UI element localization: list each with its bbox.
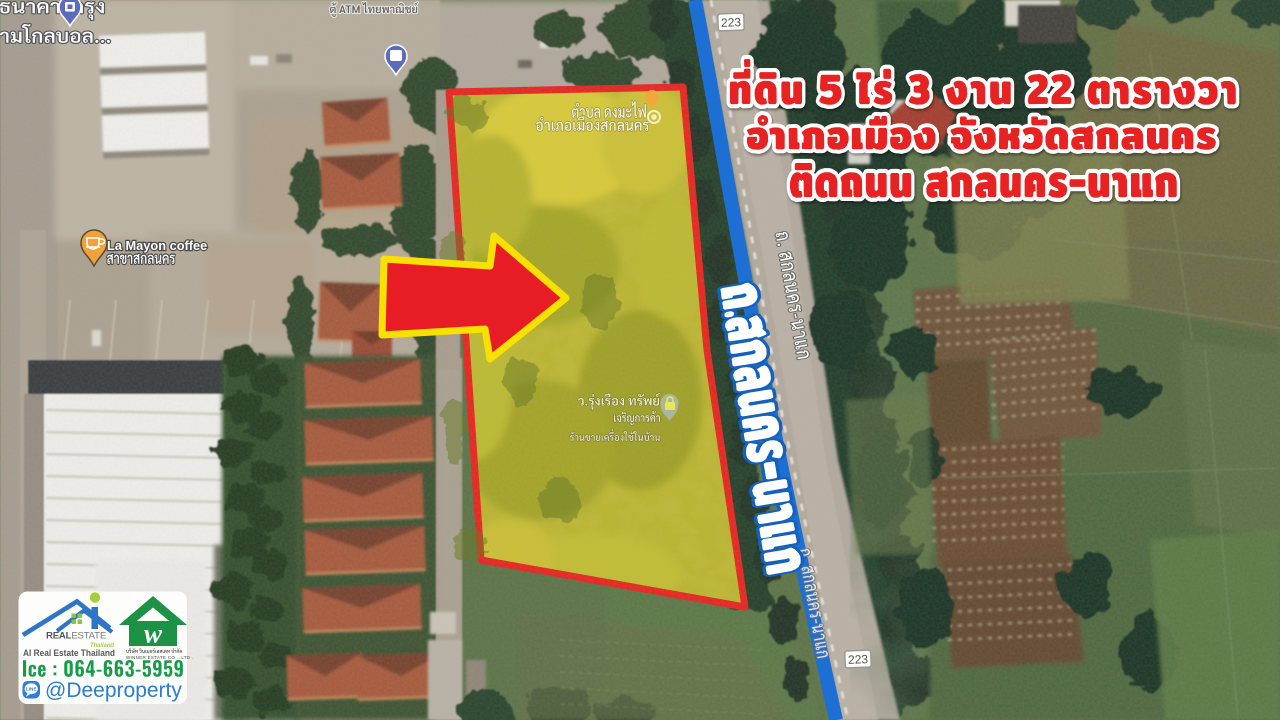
svg-text:223: 223	[721, 15, 742, 30]
svg-text:REALESTATE: REALESTATE	[46, 631, 106, 642]
svg-text:AI Real Estate Thailand: AI Real Estate Thailand	[23, 647, 115, 658]
svg-text:@Deeproperty: @Deeproperty	[45, 679, 182, 702]
svg-text:LINE: LINE	[26, 687, 36, 692]
svg-text:La Mayon coffee: La Mayon coffee	[107, 238, 207, 253]
svg-text:WINNER ESTATE CO ., LTD .: WINNER ESTATE CO ., LTD .	[126, 655, 194, 660]
svg-text:223: 223	[848, 652, 869, 667]
svg-text:w: w	[144, 619, 163, 649]
